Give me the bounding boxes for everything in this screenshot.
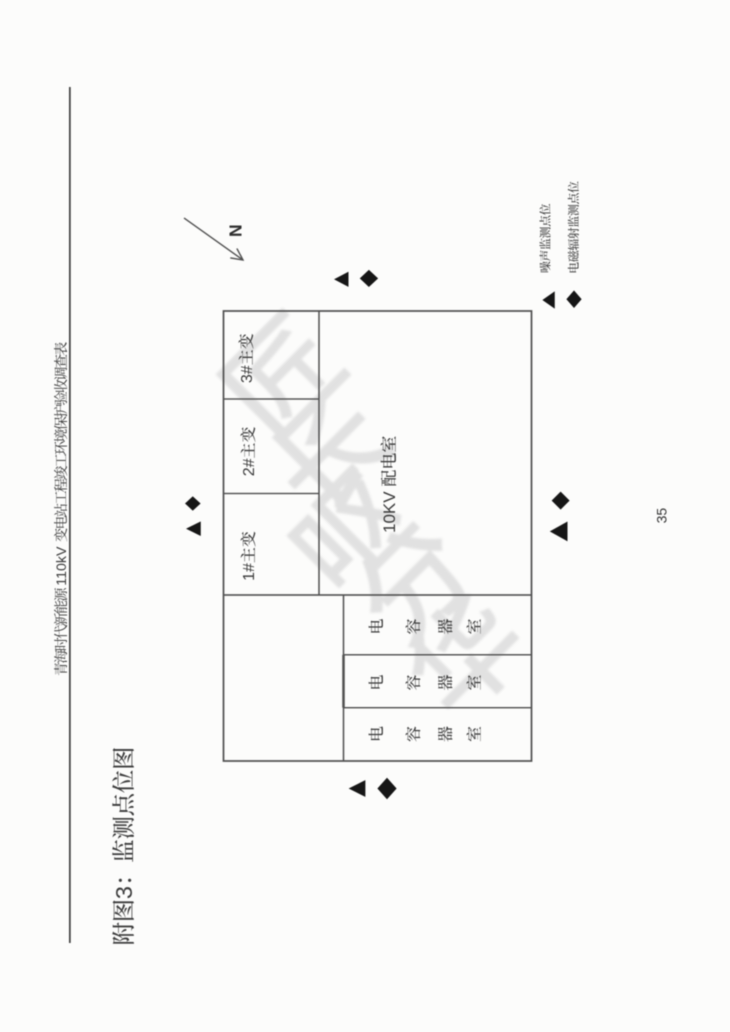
svg-text:2#: 2# — [241, 458, 258, 476]
svg-text:3#: 3# — [239, 365, 256, 383]
svg-text:3: 3 — [111, 886, 137, 899]
svg-text:1#: 1# — [241, 563, 258, 581]
svg-text:10KV: 10KV — [380, 491, 399, 533]
svg-text:N: N — [226, 224, 246, 237]
svg-text:110kV: 110kV — [54, 546, 70, 586]
svg-text:35: 35 — [654, 508, 670, 524]
